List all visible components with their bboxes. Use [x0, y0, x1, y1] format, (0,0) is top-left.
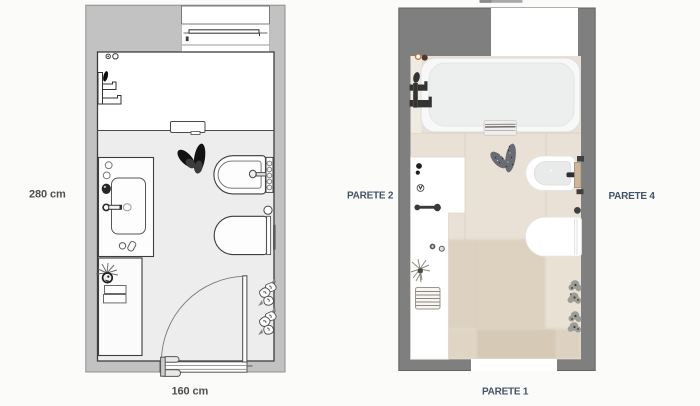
svg-text:280 cm: 280 cm	[29, 188, 66, 200]
svg-text:PARETE 4: PARETE 4	[609, 191, 656, 202]
svg-text:PARETE 2: PARETE 2	[347, 191, 394, 202]
svg-text:160 cm: 160 cm	[172, 385, 209, 397]
svg-text:PARETE 1: PARETE 1	[482, 386, 529, 397]
